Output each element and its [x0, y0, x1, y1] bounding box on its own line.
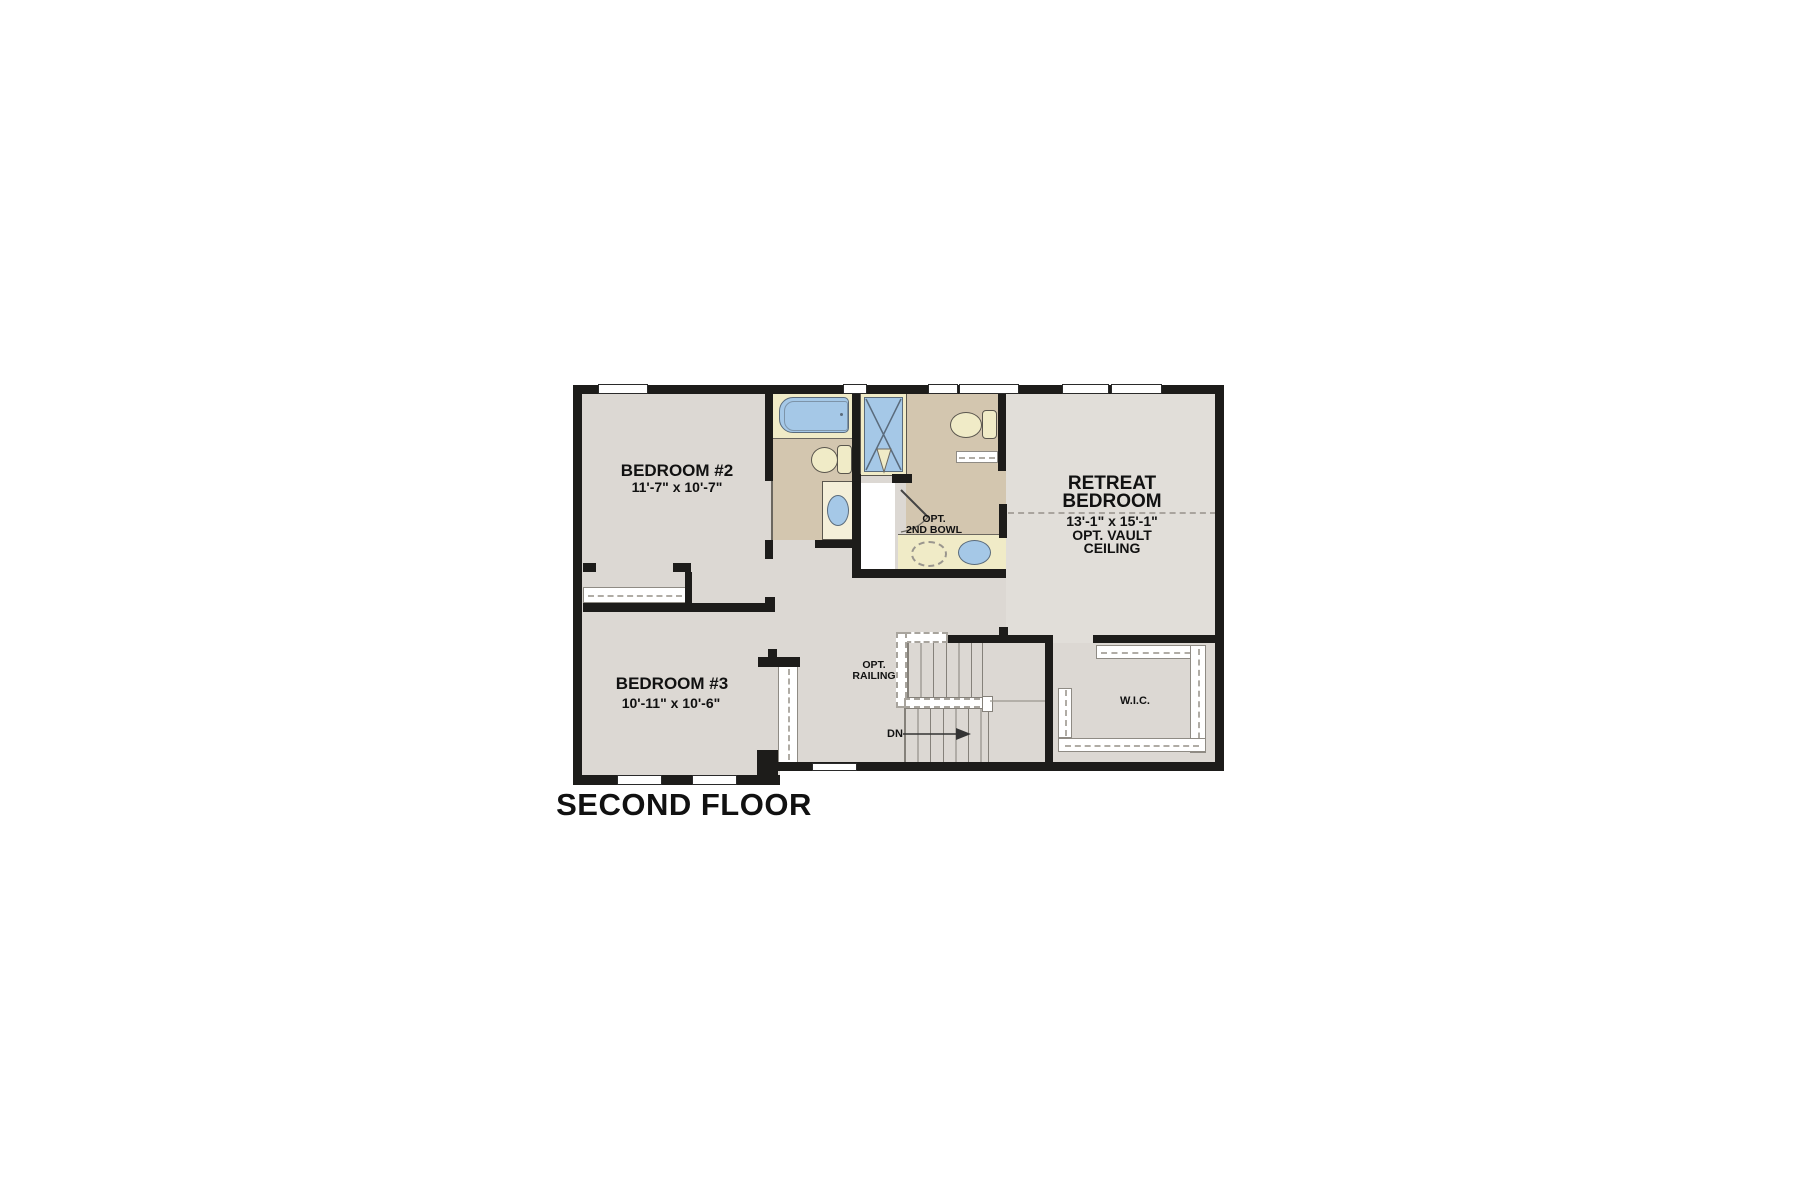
opt-2nd-bowl-label-line1: OPT.: [922, 514, 945, 525]
bedroom3-label: BEDROOM #3: [616, 675, 728, 692]
bath-hallway: [861, 483, 895, 569]
window: [812, 763, 857, 771]
opt-railing-label-line2: RAILING: [852, 671, 895, 682]
wall: [583, 603, 775, 612]
stair-landing-cap: [982, 696, 993, 712]
bedroom2-closet-shelf: [583, 587, 687, 603]
opt-railing-label-line1: OPT.: [862, 660, 885, 671]
wall: [673, 563, 691, 572]
wic-shelf-south: [1058, 738, 1206, 752]
down-label: DN: [887, 729, 903, 740]
wall: [757, 750, 778, 785]
optional-second-bowl: [911, 541, 947, 567]
window: [928, 384, 958, 394]
wic-label: W.I.C.: [1120, 696, 1150, 707]
wall: [573, 775, 780, 785]
wall: [583, 563, 596, 572]
window: [843, 384, 867, 394]
page-title: SECOND FLOOR: [556, 789, 812, 820]
wall: [768, 649, 777, 659]
hall-toilet-tank: [837, 445, 852, 474]
stair-railing-left: [896, 632, 907, 708]
bedroom3-dims: 10'-11" x 10'-6": [622, 696, 721, 710]
hall-sink: [827, 495, 849, 526]
hall-toilet-bowl: [811, 447, 838, 473]
wall: [999, 504, 1007, 538]
wall: [765, 540, 773, 559]
bedroom3-door-header: [758, 657, 800, 667]
window: [1111, 384, 1162, 394]
retreat-toilet-bowl: [950, 412, 982, 438]
wall: [815, 540, 855, 548]
wall: [765, 393, 773, 481]
wic-shelf-west: [1058, 688, 1072, 738]
wall: [852, 474, 861, 578]
retreat-toilet-tank: [982, 410, 997, 439]
stair-upper-run: [907, 641, 983, 698]
wall: [852, 569, 1006, 578]
wall: [852, 393, 860, 481]
retreat-bedroom-dims: 13'-1" x 15'-1": [1066, 514, 1158, 528]
wall: [765, 597, 775, 612]
wall: [1093, 635, 1224, 643]
window: [1062, 384, 1109, 394]
window: [617, 775, 662, 785]
window: [598, 384, 648, 394]
bathtub-inner-line: [784, 401, 848, 431]
retreat-bedroom-label-line2: BEDROOM: [1062, 492, 1161, 511]
bedroom2-label: BEDROOM #2: [621, 462, 733, 479]
wall: [1215, 385, 1224, 771]
window: [692, 775, 737, 785]
retreat-opt-vault-line2: CEILING: [1084, 541, 1141, 555]
towel-bar: [956, 451, 998, 463]
wall: [573, 385, 582, 785]
floor-plan-page: BEDROOM #2 11'-7" x 10'-7" BEDROOM #3 10…: [0, 0, 1800, 1200]
stair-lower-run: [904, 708, 989, 763]
wall: [685, 572, 692, 604]
bathtub-drain: [840, 413, 843, 416]
bedroom2-dims: 11'-7" x 10'-7": [632, 480, 723, 494]
opt-2nd-bowl-label-line2: 2ND BOWL: [906, 525, 962, 536]
stair-landing: [904, 698, 990, 708]
wall: [948, 635, 1048, 643]
retreat-sink: [958, 540, 991, 565]
window: [959, 384, 1019, 394]
wall: [998, 393, 1006, 471]
wall: [1045, 635, 1053, 771]
wall: [892, 474, 912, 483]
wic-shelf-east: [1190, 645, 1206, 753]
linen-shelf: [778, 665, 798, 764]
wall-thin: [771, 481, 773, 541]
shower-pan: [864, 397, 903, 472]
